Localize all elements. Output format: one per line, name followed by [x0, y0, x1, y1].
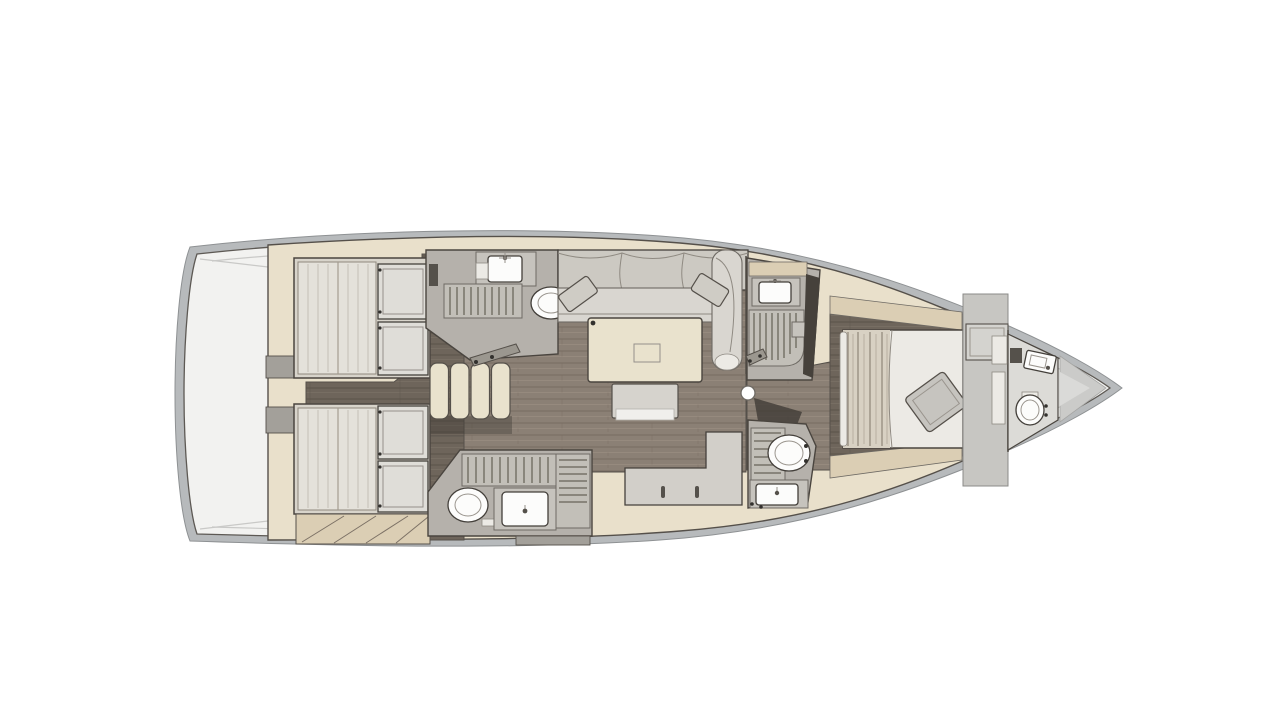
- aft-cabin-top: [294, 258, 430, 378]
- yacht-floorplan: [0, 0, 1280, 720]
- bed-head-locker: [378, 264, 428, 319]
- toilet-hinge: [482, 519, 494, 526]
- sink: [759, 282, 791, 303]
- cabinet: [1010, 348, 1022, 363]
- shower-grate: [444, 284, 522, 318]
- bed-blanket: [843, 330, 890, 448]
- door-knob: [741, 386, 755, 400]
- mattress-edge: [840, 332, 847, 446]
- toilet: [768, 435, 810, 471]
- threshold-step: [516, 536, 590, 545]
- double-bed-mattress: [298, 262, 376, 374]
- head-mid-forward: [748, 420, 816, 509]
- yacht-floorplan-page: [0, 0, 1280, 720]
- shelf: [749, 262, 807, 276]
- drawer-handle: [695, 486, 699, 498]
- faucet-icon: [775, 491, 779, 495]
- stair-step: [471, 363, 490, 419]
- stair-step: [451, 363, 470, 419]
- aft-steps-panel: [296, 514, 430, 544]
- chaise-end-cushion: [715, 354, 739, 370]
- head-aft-bottom: [428, 450, 592, 545]
- toilet: [448, 488, 488, 522]
- shower-grate-side: [556, 454, 590, 528]
- bed-head-locker: [378, 461, 428, 512]
- stair-step: [430, 363, 449, 419]
- shelf: [992, 336, 1007, 364]
- grate-slats: [559, 460, 587, 502]
- drawer-handle: [661, 486, 665, 498]
- aft-cabin-bottom: [294, 404, 430, 544]
- faucet-icon: [523, 509, 528, 514]
- wall-fixture: [429, 264, 438, 286]
- shower-room-mid: [746, 258, 820, 380]
- soap-tray: [476, 263, 488, 279]
- shelf: [992, 372, 1005, 424]
- bed-head-locker: [378, 406, 428, 459]
- salon-table: [588, 318, 702, 382]
- stair-step: [492, 363, 511, 419]
- bed-head-locker: [378, 322, 428, 375]
- double-bed-mattress: [298, 408, 376, 510]
- shower-seat: [792, 322, 805, 337]
